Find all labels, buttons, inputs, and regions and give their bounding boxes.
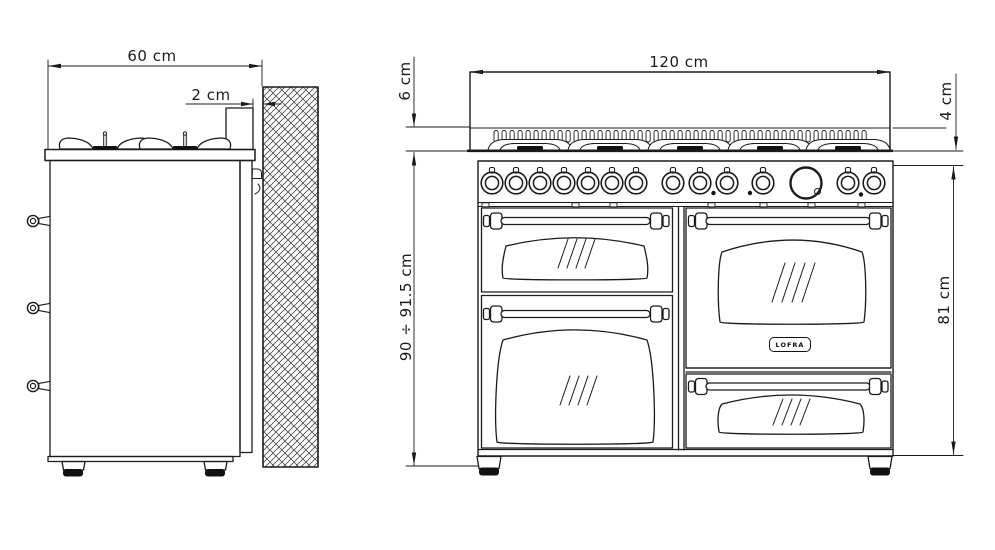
dim-width-label: 120 cm xyxy=(649,53,708,71)
burner-mounds xyxy=(488,140,890,151)
front-view-drawing xyxy=(468,72,893,476)
side-burners xyxy=(59,132,230,150)
dimension-lines xyxy=(48,57,963,466)
side-base-strip xyxy=(48,457,233,462)
brand-logo-badge: LOFRA xyxy=(769,337,811,352)
dim-hob-edge-label: 4 cm xyxy=(937,81,955,120)
control-knobs xyxy=(481,168,885,199)
rear-bracket xyxy=(252,169,262,194)
side-rear-foot-pad xyxy=(205,469,225,477)
front-right-foot-pad xyxy=(870,468,890,476)
dim-total-height-label: 90 ÷ 91.5 cm xyxy=(397,253,415,361)
wall-crosshatch xyxy=(263,87,318,467)
side-worktop xyxy=(45,150,255,161)
right-main-window xyxy=(718,240,865,324)
dim-upstand-label: 6 cm xyxy=(396,61,414,100)
front-left-foot xyxy=(477,457,501,469)
dim-depth-label: 60 cm xyxy=(127,47,176,65)
drawing-canvas: 60 cm 2 cm 120 cm 6 cm 90 ÷ 91.5 cm 4 cm… xyxy=(0,0,995,550)
side-rear-panel xyxy=(240,161,252,453)
side-rear-foot xyxy=(204,462,227,471)
side-front-foot-pad xyxy=(63,469,83,477)
side-view-drawing xyxy=(27,87,318,477)
left-lower-oven-door xyxy=(482,296,673,449)
front-right-foot xyxy=(868,457,892,469)
side-front-foot xyxy=(62,462,85,471)
front-left-foot-pad xyxy=(479,468,499,476)
technical-drawing-svg xyxy=(0,0,995,550)
dim-wall-gap-label: 2 cm xyxy=(191,86,230,104)
side-body xyxy=(50,161,240,457)
dim-body-height-label: 81 cm xyxy=(935,275,953,324)
side-door-handles xyxy=(27,215,50,391)
brand-logo-text: LOFRA xyxy=(776,341,805,349)
